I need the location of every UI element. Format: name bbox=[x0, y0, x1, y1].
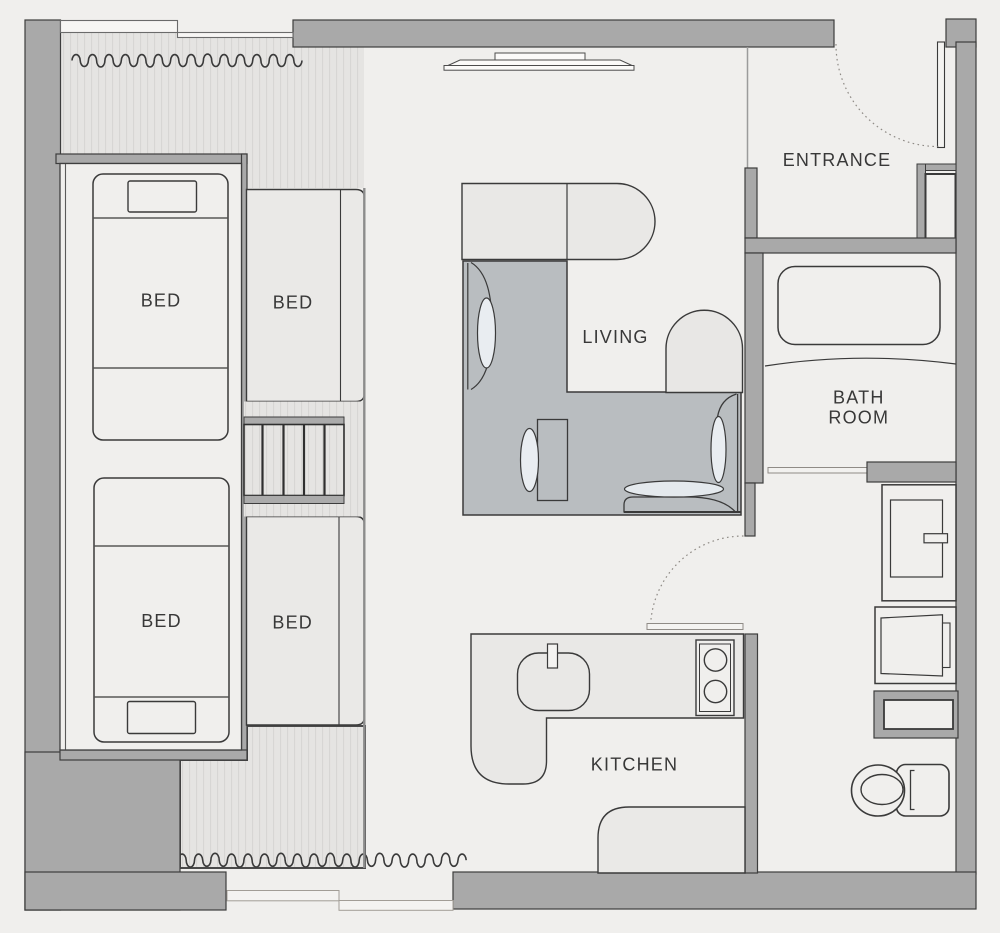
svg-text:BATH: BATH bbox=[833, 388, 884, 408]
svg-text:KITCHEN: KITCHEN bbox=[591, 755, 678, 775]
svg-text:BED: BED bbox=[141, 291, 182, 311]
svg-text:BED: BED bbox=[273, 293, 314, 313]
svg-text:ENTRANCE: ENTRANCE bbox=[783, 150, 892, 170]
svg-text:BED: BED bbox=[141, 611, 182, 631]
svg-text:ROOM: ROOM bbox=[828, 408, 889, 428]
svg-text:BED: BED bbox=[272, 613, 313, 633]
svg-text:LIVING: LIVING bbox=[582, 327, 648, 347]
